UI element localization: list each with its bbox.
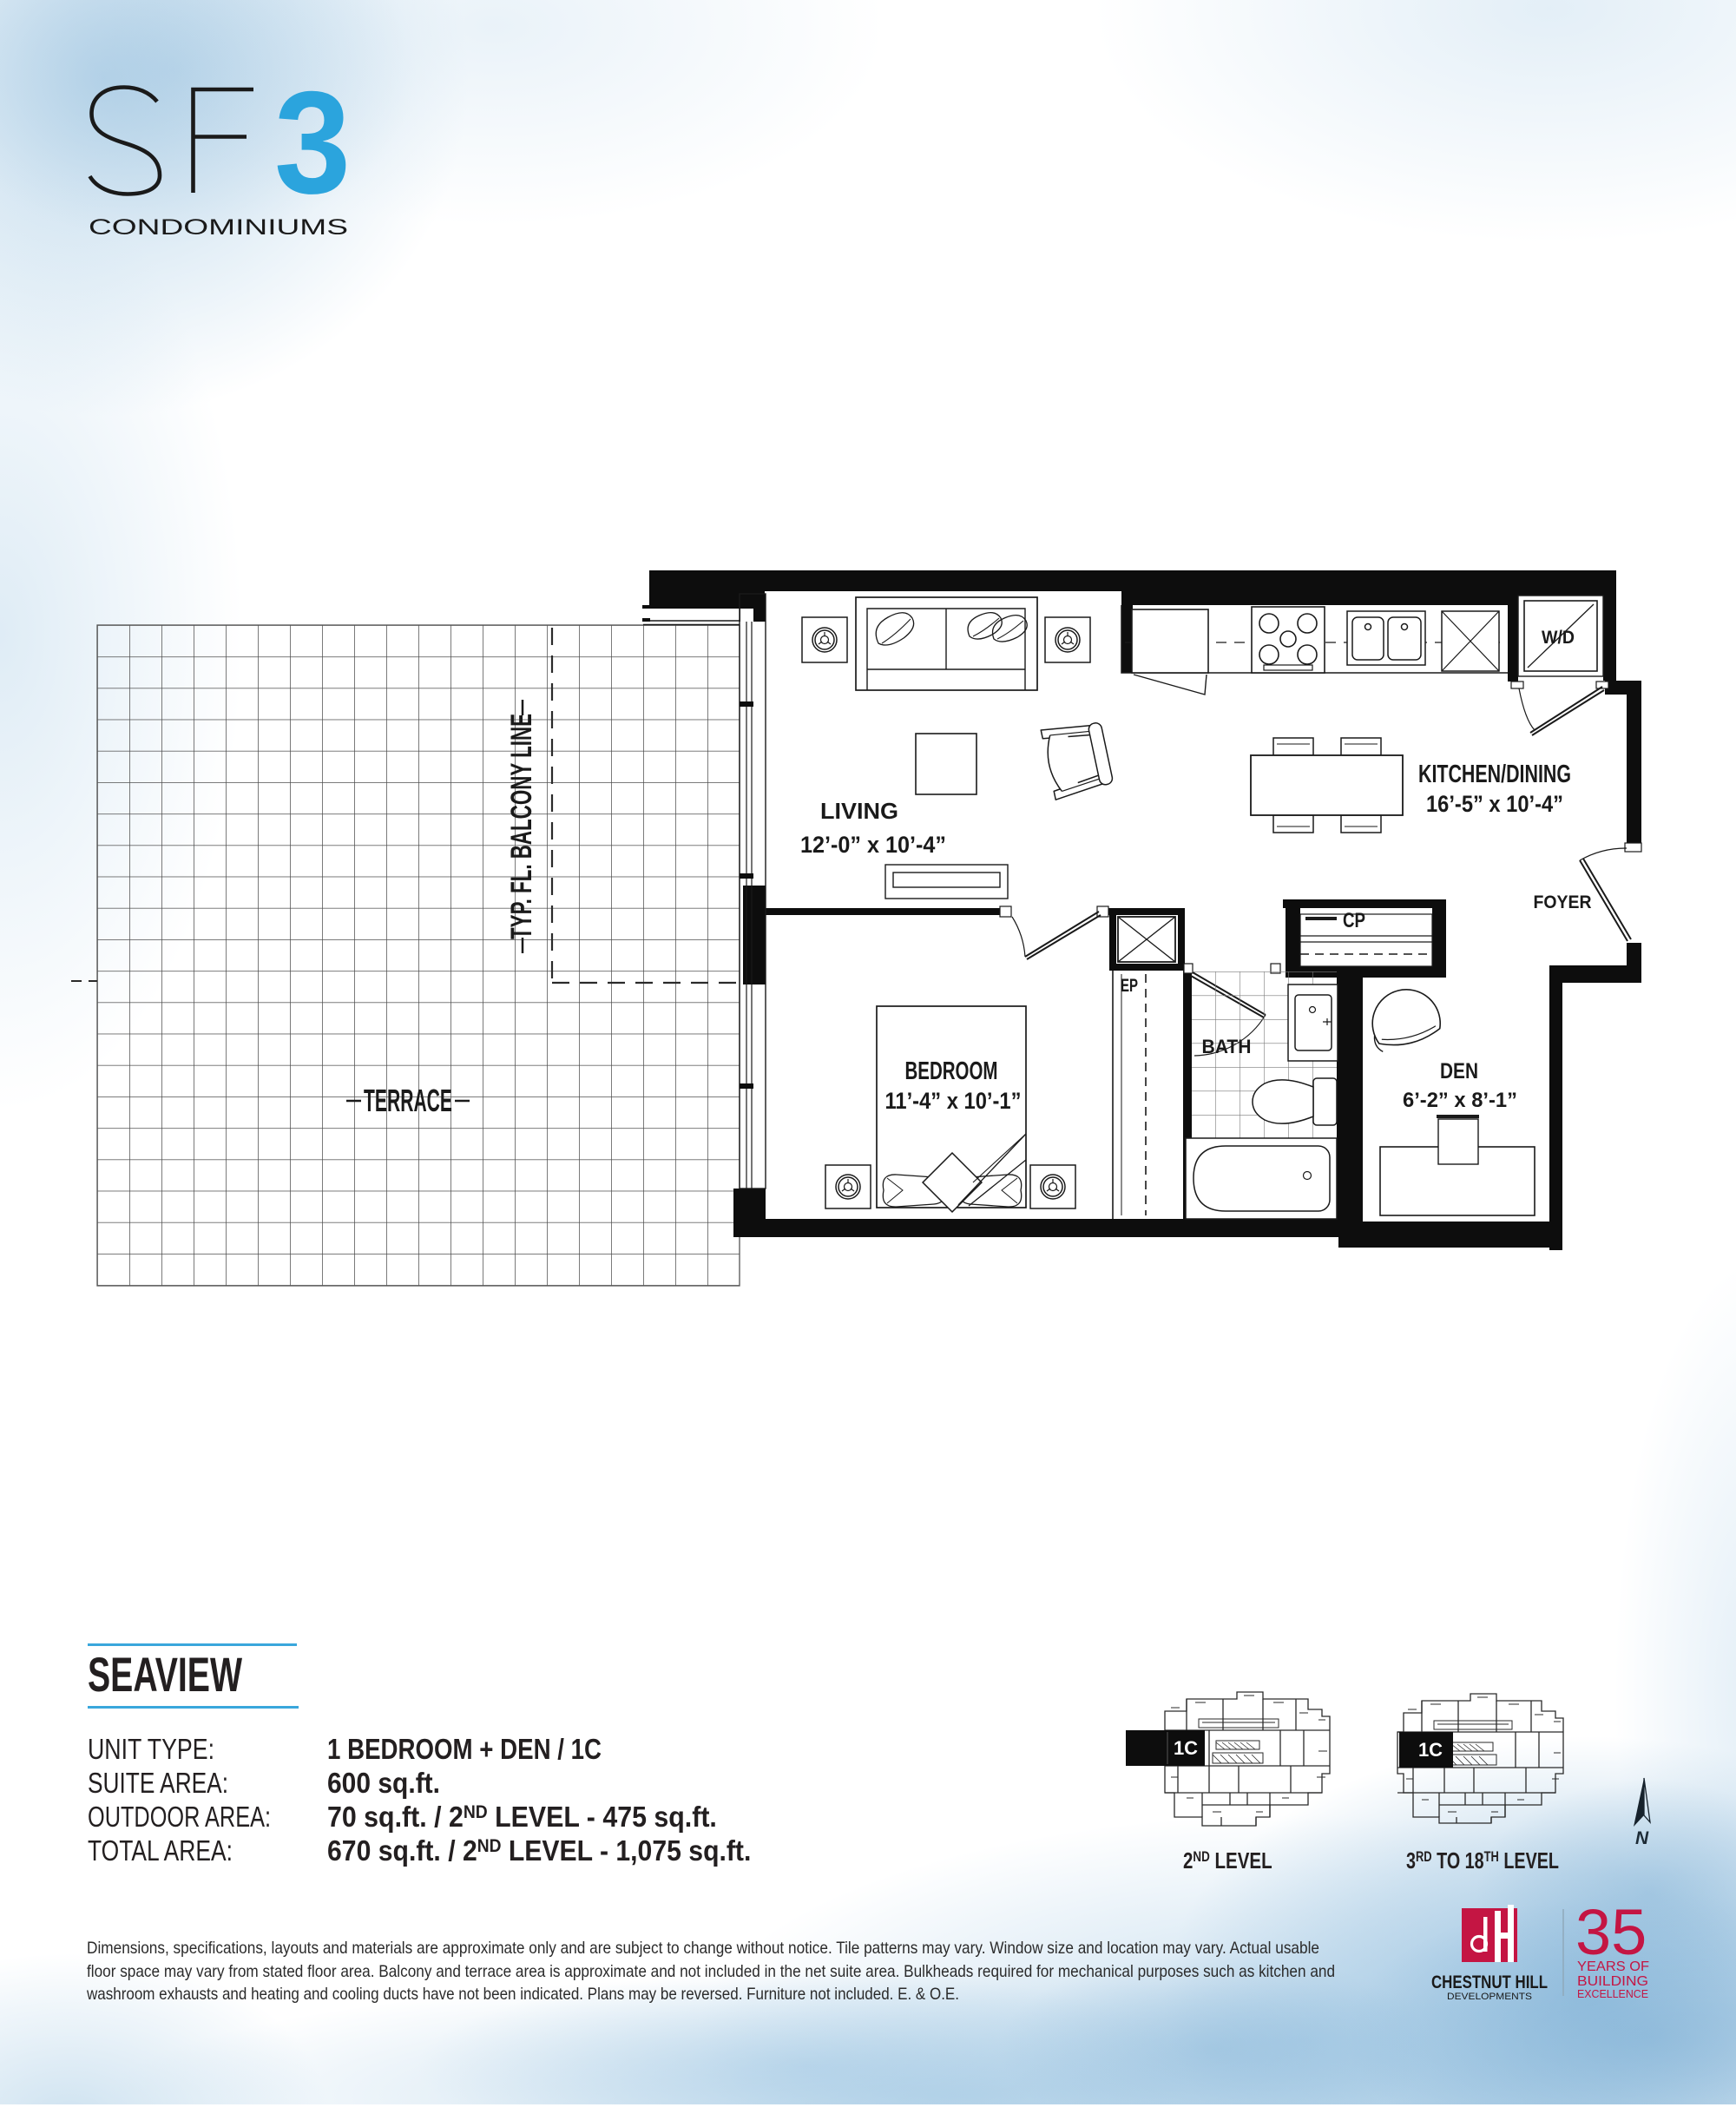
svg-text:1C: 1C	[1174, 1737, 1198, 1759]
svg-text:DEN: DEN	[1440, 1059, 1478, 1083]
svg-text:TERRACE: TERRACE	[364, 1083, 452, 1118]
svg-text:DEVELOPMENTS: DEVELOPMENTS	[1447, 1992, 1532, 2002]
svg-text:SUITE AREA:: SUITE AREA:	[88, 1767, 228, 1799]
svg-text:16’-5” x 10’-4”: 16’-5” x 10’-4”	[1426, 791, 1563, 817]
svg-text:EP: EP	[1121, 976, 1138, 996]
svg-text:3: 3	[274, 61, 351, 224]
svg-text:BATH: BATH	[1202, 1036, 1252, 1057]
svg-text:CONDOMINIUMS: CONDOMINIUMS	[89, 215, 348, 240]
svg-text:11’-4” x 10’-1”: 11’-4” x 10’-1”	[885, 1088, 1022, 1114]
svg-text:FOYER: FOYER	[1534, 892, 1592, 912]
svg-text:35: 35	[1575, 1896, 1647, 1968]
svg-text:1 BEDROOM + DEN / 1C: 1 BEDROOM + DEN / 1C	[327, 1733, 602, 1765]
svg-text:70 sq.ft. / 2ND LEVEL - 475 sq: 70 sq.ft. / 2ND LEVEL - 475 sq.ft.	[327, 1801, 717, 1833]
svg-text:12’-0” x 10’-4”: 12’-0” x 10’-4”	[800, 832, 946, 858]
svg-text:SEAVIEW: SEAVIEW	[88, 1647, 242, 1702]
svg-text:LIVING: LIVING	[820, 798, 898, 824]
svg-text:3RD TO 18TH LEVEL: 3RD TO 18TH LEVEL	[1406, 1847, 1559, 1873]
svg-text:6’-2” x 8’-1”: 6’-2” x 8’-1”	[1403, 1089, 1517, 1112]
svg-text:washroom exhausts and heating: washroom exhausts and heating and coolin…	[86, 1985, 959, 2004]
svg-text:YEARS OF: YEARS OF	[1577, 1959, 1649, 1974]
svg-text:TOTAL AREA:: TOTAL AREA:	[88, 1834, 233, 1867]
svg-text:UNIT TYPE:: UNIT TYPE:	[88, 1733, 214, 1765]
svg-text:OUTDOOR AREA:: OUTDOOR AREA:	[88, 1801, 271, 1833]
svg-text:BEDROOM: BEDROOM	[905, 1057, 998, 1085]
svg-text:Dimensions, specifications, la: Dimensions, specifications, layouts and …	[87, 1939, 1319, 1958]
svg-text:W/D: W/D	[1542, 628, 1575, 648]
svg-text:KITCHEN/DINING: KITCHEN/DINING	[1418, 761, 1571, 788]
svg-text:600 sq.ft.: 600 sq.ft.	[327, 1767, 440, 1799]
svg-text:EXCELLENCE: EXCELLENCE	[1577, 1987, 1648, 2000]
svg-text:670 sq.ft. / 2ND LEVEL - 1,075: 670 sq.ft. / 2ND LEVEL - 1,075 sq.ft.	[327, 1834, 751, 1867]
svg-text:floor space may vary from stat: floor space may vary from stated floor a…	[87, 1962, 1335, 1981]
svg-text:2ND LEVEL: 2ND LEVEL	[1183, 1848, 1272, 1873]
svg-text:CP: CP	[1343, 909, 1365, 932]
svg-text:TYP. FL. BALCONY LINE: TYP. FL. BALCONY LINE	[505, 714, 538, 939]
svg-text:N: N	[1635, 1828, 1649, 1848]
svg-text:1C: 1C	[1418, 1739, 1443, 1761]
svg-text:CHESTNUT HILL: CHESTNUT HILL	[1431, 1972, 1548, 1992]
